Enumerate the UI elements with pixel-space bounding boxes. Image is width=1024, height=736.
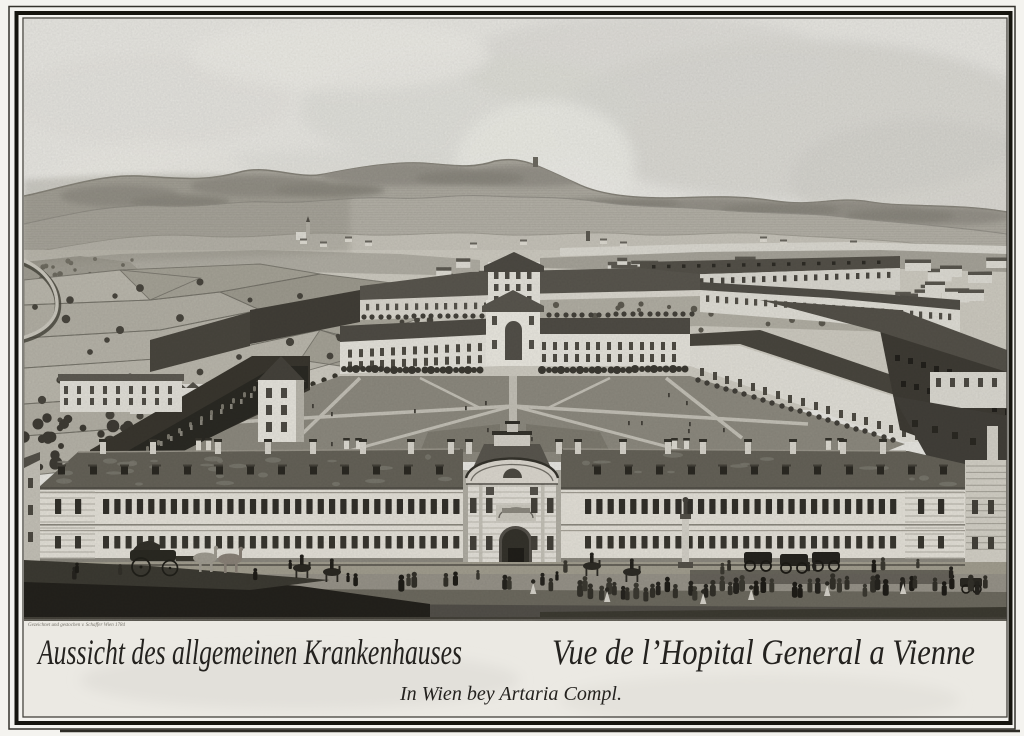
svg-text:In Wien bey Artaria Compl.: In Wien bey Artaria Compl. xyxy=(399,683,622,705)
svg-text:Aussicht des allgemeinen Krank: Aussicht des allgemeinen Krankenhauses xyxy=(37,632,462,672)
svg-text:Vue de l’Hopital General a Vie: Vue de l’Hopital General a Vienne xyxy=(552,632,975,672)
svg-text:Gezeichnet und gestochen v. Sc: Gezeichnet und gestochen v. Schaffer Wie… xyxy=(28,623,125,628)
